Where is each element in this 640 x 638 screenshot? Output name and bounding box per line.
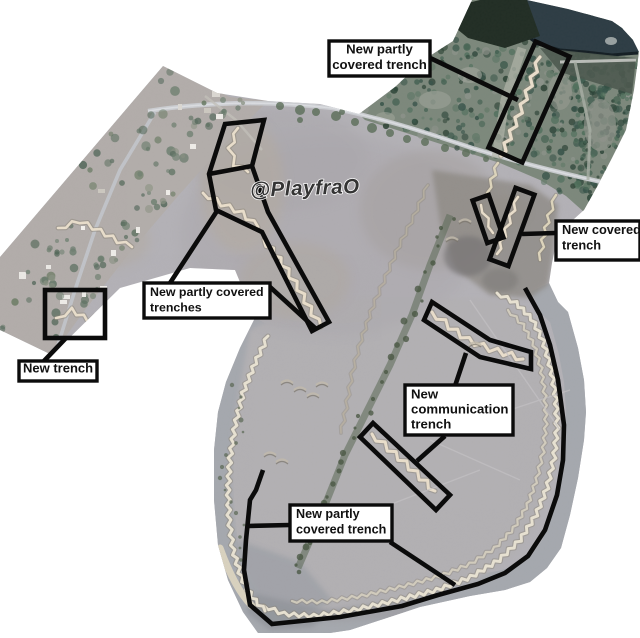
svg-text:communication: communication <box>411 402 508 417</box>
svg-text:New trench: New trench <box>23 360 93 375</box>
svg-text:covered trench: covered trench <box>296 523 386 537</box>
svg-text:trenches: trenches <box>150 300 202 314</box>
svg-text:covered trench: covered trench <box>332 57 427 72</box>
svg-text:trench: trench <box>562 238 601 253</box>
svg-text:New partly covered: New partly covered <box>150 285 264 299</box>
svg-text:New: New <box>411 387 439 402</box>
svg-text:trench: trench <box>411 417 451 432</box>
svg-text:New covered: New covered <box>562 222 640 237</box>
svg-text:@PlayfraO: @PlayfraO <box>250 175 360 202</box>
svg-text:New partly: New partly <box>296 507 360 521</box>
svg-text:New partly: New partly <box>346 42 413 57</box>
